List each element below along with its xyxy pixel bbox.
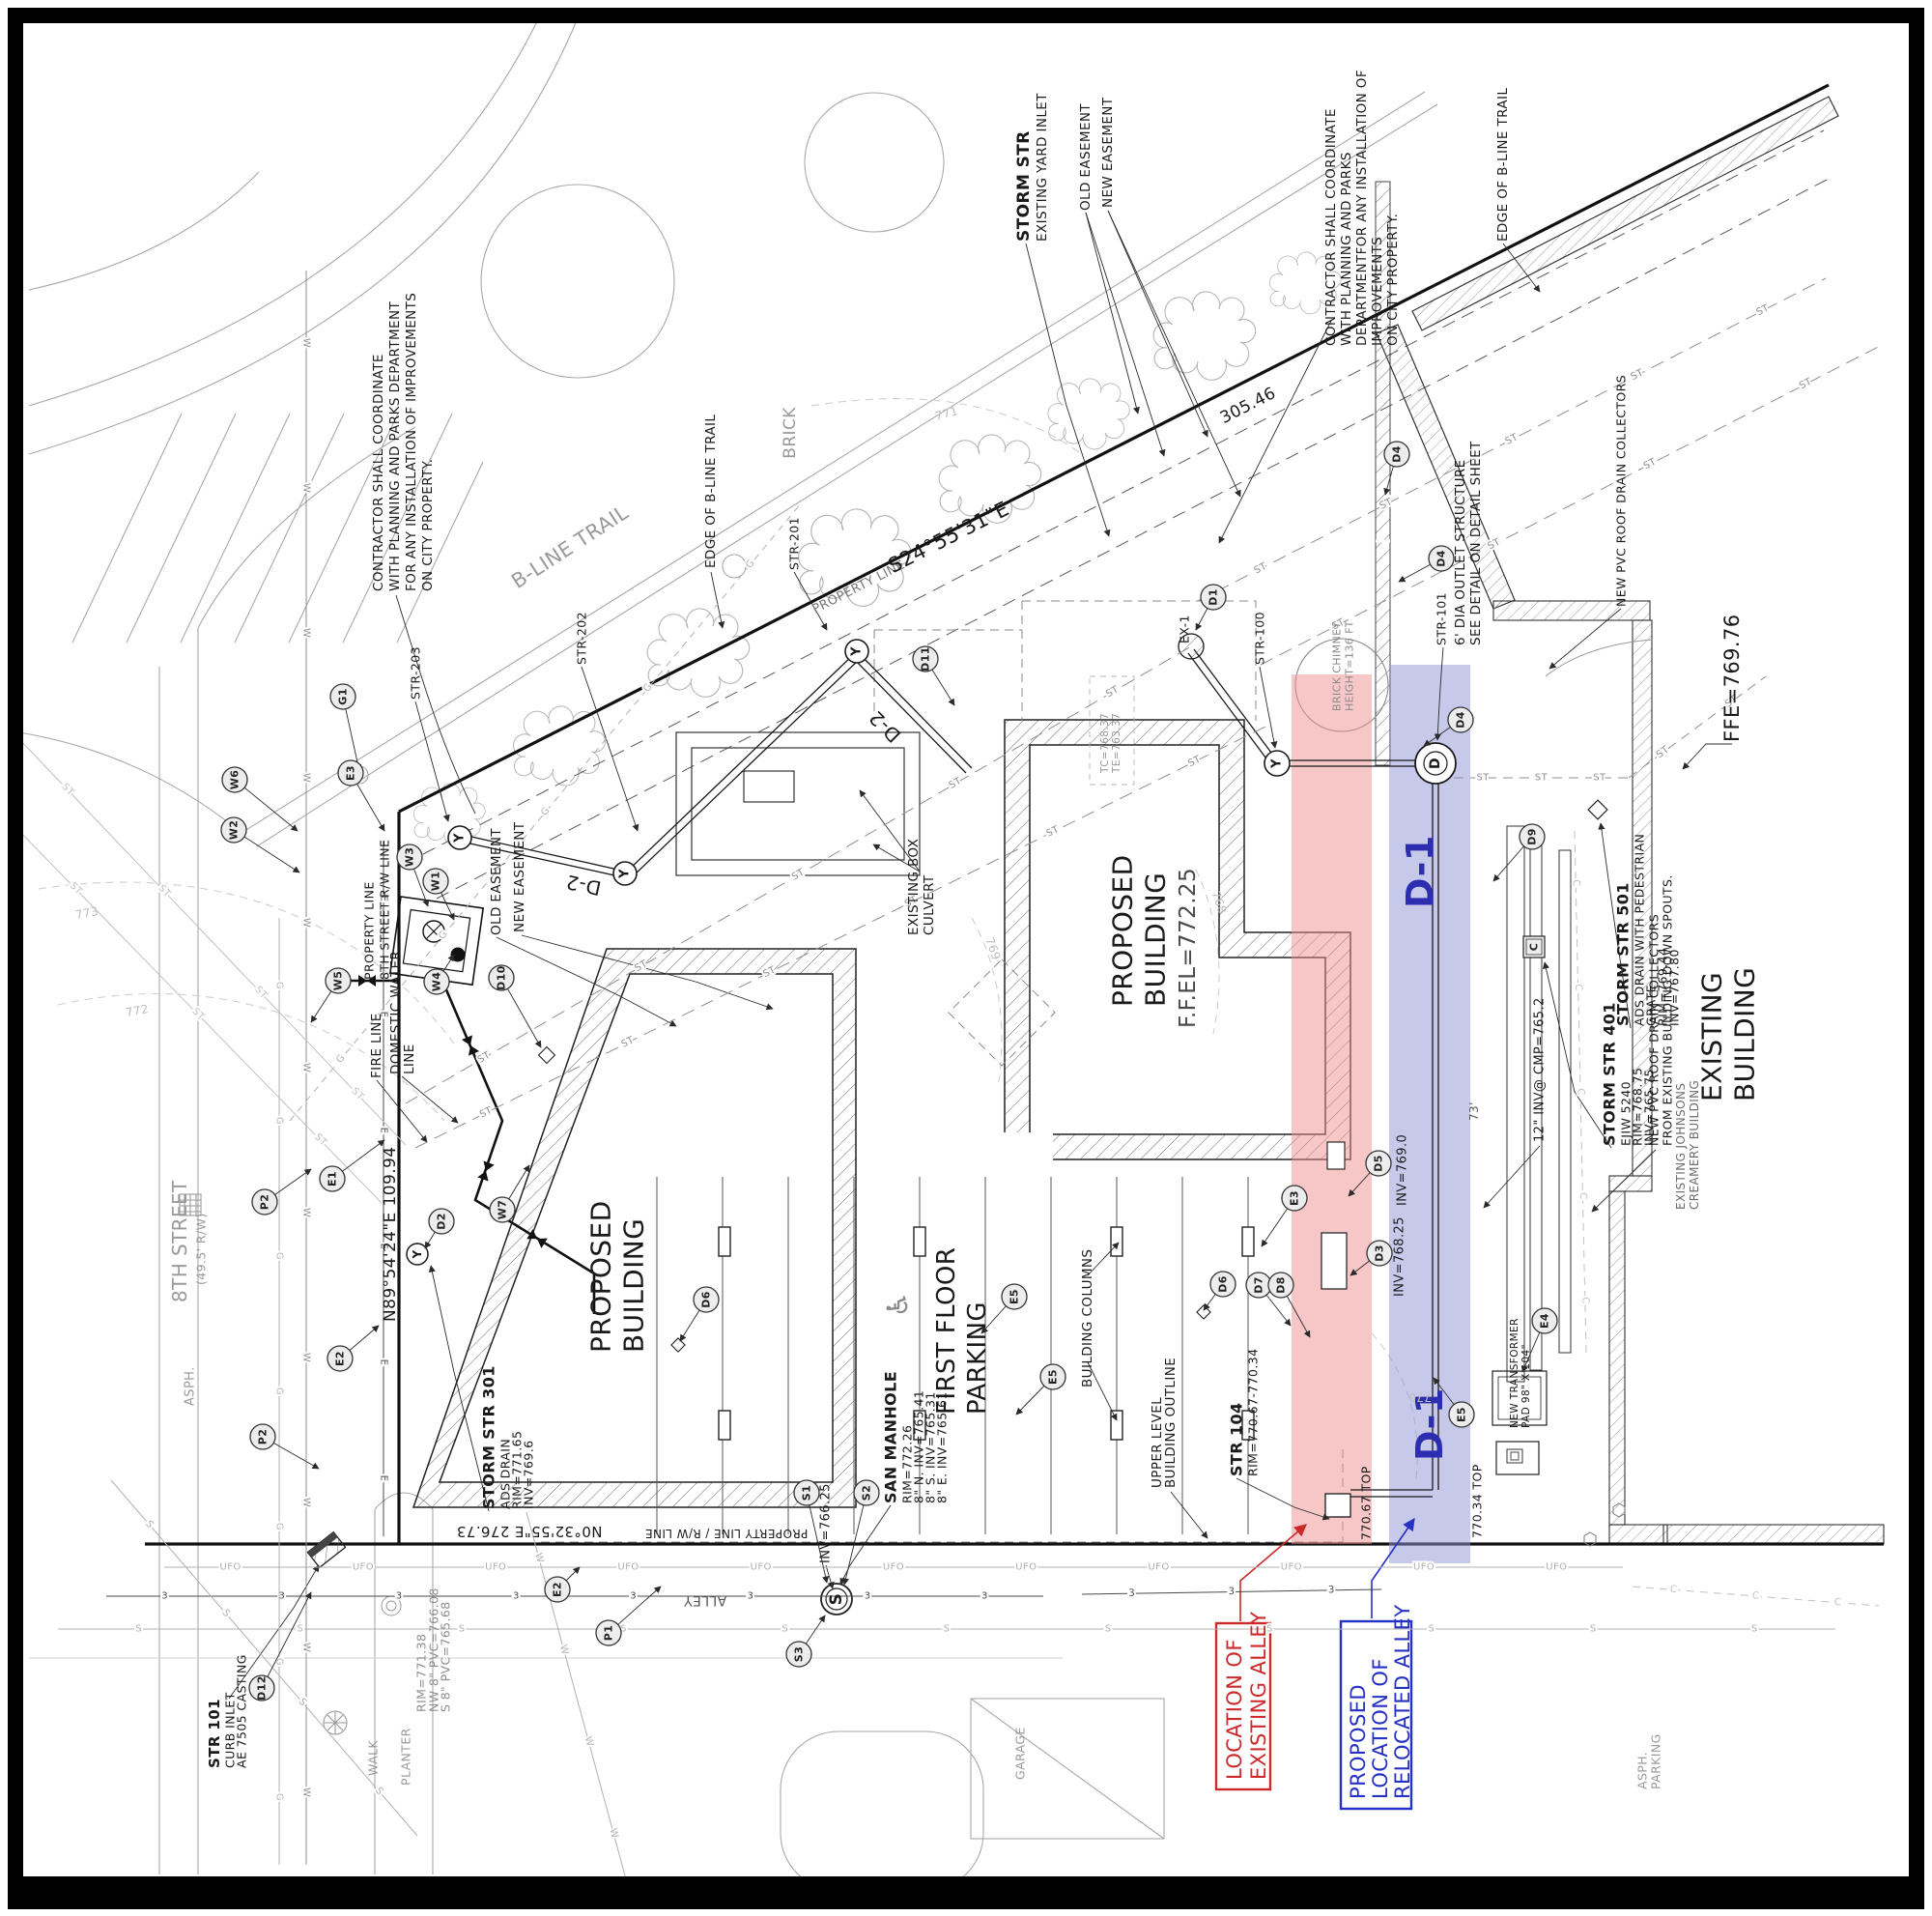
plan-label: D-2 [865,706,906,748]
planter-outline [781,1731,983,1891]
plan-label: (49.5' R/W) [194,1213,209,1285]
plan-label: FIRE LINE [369,1013,384,1078]
plan-label: B-LINE TRAIL [507,500,633,593]
utility-line-letter: W [301,628,312,638]
plan-label: S 8" PVC=765.68 [439,1601,453,1712]
marker-E2: E2 [327,1326,379,1371]
utility-line-letter: W [301,1353,312,1362]
plan-label: 773 [74,904,99,922]
plan-label: INV=765.75 [1642,1069,1657,1146]
marker-id: D10 [496,965,508,990]
plan-label: HEIGHT=136 FT [1344,620,1356,711]
marker-W5: W5 [311,968,351,1022]
plan-label: NEW EASEMENT [512,821,527,932]
marker-id: D7 [1253,1276,1265,1294]
road-curve [29,172,259,290]
utility-line-letter: E [379,1128,389,1134]
utility-line-letter: C [1579,1297,1590,1304]
plan-label: 12" INV@ CMP=765.2 [1533,997,1548,1142]
drain-symbol [1197,1305,1210,1319]
marker-P2: P2 [250,1424,319,1469]
utility-line-letter: ST [1642,456,1659,472]
plan-label: Y [1270,758,1285,769]
building-opening [968,1132,1053,1161]
plan-label: CREAMERY BUILDING [1688,1080,1701,1210]
marker-W2: W2 [221,817,299,872]
marker-D6: D6 [680,1287,719,1341]
plan-label: STR-202 [575,612,589,665]
plan-label: S24°55'31"E [884,497,1012,578]
plan-label: NEW PVC ROOF DRAIN COLLECTORS [1614,375,1629,607]
utility-line-letter: S [1751,1624,1758,1635]
plan-label: Y [453,833,468,844]
plan-label: LOCATION OF [1369,1658,1392,1799]
utility-line-letter: S [298,1624,304,1635]
utility-line-letter: C [1833,1597,1841,1609]
utility-line-letter: UFO [617,1562,639,1573]
utility-line-letter: S [944,1624,951,1635]
plan-label: ♿ [882,1291,916,1317]
utility-line-letter: ST [948,776,964,791]
utility-line-letter: UFO [485,1562,506,1573]
plan-label: ON CITY PROPERTY. [1385,214,1401,346]
plan-label: FOR ANY INSTALLATION OF IMPROVEMENTS [404,293,419,591]
utility-line-letter: S [1105,1624,1112,1635]
utility-line-letter: G [274,1793,285,1801]
utility-line-letter: G [274,1523,285,1530]
plan-label: INV=767.80 [1667,949,1682,1026]
plan-label: OLD EASEMENT [1078,103,1094,211]
utility-line-letter: W [301,1063,312,1072]
plan-label: INV=769.6 [522,1441,536,1509]
utility-line-letter: S [459,1624,466,1635]
plan-label: Y [411,1249,424,1259]
plan-label: 770.67 TOP [1359,1466,1374,1540]
utility-line-letter: 3 [630,1591,637,1602]
plan-label: PROPOSED [1107,854,1139,1007]
marker-id: D6 [700,1291,713,1308]
utility-line-letter: UFO [1413,1562,1435,1573]
marker-S3: S3 [786,1616,825,1667]
utility-line-letter: ST [620,1035,637,1050]
plan-label: 8" E. INV=765.61 [935,1391,950,1503]
plan-label: WALK [366,1740,381,1776]
utility-line-letter: ST [1186,754,1203,769]
marker-id: P2 [259,1194,271,1211]
marker-id: E1 [327,1171,339,1187]
marker-G1: G1 [330,684,359,771]
marker-id: D3 [1374,1244,1386,1262]
utility-line-letter: G [274,1387,285,1395]
marker-id: D11 [920,646,932,672]
plan-label: FFE=769.76 [1720,614,1744,742]
plan-label: ALLEY [684,1592,727,1608]
utility-line-letter: ST [790,867,807,882]
utility-line-letter: ST [1535,773,1548,784]
marker-id: S1 [801,1485,813,1501]
plan-label: PROPOSED [585,1200,617,1353]
plan-label: EXISTING BOX [906,839,922,935]
plan-label: LINE [402,1044,417,1074]
utility-line-letter: ST [1755,302,1772,318]
utility-line-letter: UFO [1546,1562,1567,1573]
plan-label: NEW TRANSFORMER [1509,1318,1520,1428]
str-104-structure [1325,1494,1350,1517]
utility-line-letter: S [220,1608,233,1619]
plan-label: LOCATION OF [1223,1639,1246,1780]
marker-id: E5 [1456,1407,1468,1422]
utility-line-letter: S [1428,1624,1435,1635]
plan-label: PROPERTY LINE [362,881,377,980]
marker-id: E2 [552,1582,564,1597]
plan-label: 8TH STREET [168,1180,191,1302]
plan-label: N0°32'55"E 276.73 [457,1523,603,1540]
utility-line-letter: C [1577,1192,1588,1200]
plan-label: S [827,1593,846,1606]
marker-C: C [1523,936,1545,958]
marker-id: D6 [1217,1275,1230,1293]
plan-label: BUILDING [1729,967,1761,1101]
marker-E2: E2 [545,1567,580,1602]
utility-line-letter: 3 [747,1591,753,1602]
marker-id: S3 [793,1646,806,1662]
marker-id: P2 [257,1429,270,1445]
utility-line-letter: S [781,1624,788,1635]
plan-label: 73' [1467,1101,1481,1121]
plan-label: CULVERT [922,874,937,935]
storm-box [1327,1142,1345,1169]
utility-line-letter: 3 [981,1591,988,1602]
marker-id: W4 [431,972,443,992]
marker-id: E5 [1009,1289,1021,1304]
tree-canopy-large [481,185,674,378]
utility-line-letter: W [607,1827,619,1840]
utility-line-letter: S [135,1624,142,1635]
plan-label: PROPOSED [1347,1684,1370,1799]
utility-line-letter: ST [1630,367,1646,383]
plan-label: FIRST FLOOR [932,1247,961,1415]
marker-id: D1 [1207,588,1220,606]
marker-id: D8 [1275,1276,1288,1294]
plan-label: INV=769.0 [1396,1134,1410,1206]
utility-line-letter: ST [478,1105,495,1121]
plan-label: IMPROVEMENTS [1370,237,1385,346]
marker-id: D4 [1455,711,1467,729]
marker-D10: D10 [489,965,541,1047]
marker-E1: E1 [320,1140,384,1191]
utility-line-letter: UFO [1148,1562,1169,1573]
site-plan-drawing: UFOUFOUFOUFOUFOUFOUFOUFOUFOUFOUFO3333333… [0,0,1932,1916]
utility-line [19,739,406,1145]
plan-label: GARAGE [1013,1727,1028,1780]
plan-label: RELOCATED ALLEY [1391,1604,1414,1799]
utility-line-letter: UFO [353,1562,374,1573]
utility-line-letter: W [532,1552,545,1564]
utility-line-letter: UFO [883,1562,904,1573]
utility-line-letter: W [301,1787,312,1797]
plan-label: PROPERTY LINE / R/W LINE [645,1527,809,1540]
marker-id: D2 [436,1213,448,1230]
utility-line-letter: W [557,1644,570,1656]
plan-label: D [1428,758,1443,769]
marker-id: S2 [861,1485,873,1501]
utility-line-letter: ST [1655,744,1672,760]
plan-label: DEPARTMENTFOR ANY INSTALLATION OF [1354,70,1370,346]
utility-line-letter: G [437,929,450,941]
utility-line-letter: ST [1253,560,1269,576]
marker-id: W3 [404,847,416,868]
plan-label: EXISTING YARD INLET [1035,93,1050,242]
utility-line-letter: S [297,1697,309,1708]
utility-line-letter: E [379,1359,389,1366]
marker-id: E3 [345,765,357,781]
utility-line-letter: UFO [220,1562,241,1573]
plan-label: STR 104 [1228,1402,1246,1476]
existing-bldg-south-wall [1663,1525,1884,1544]
marker-D4: D4 [1399,546,1454,582]
plan-label: TC=768.37 [1099,713,1111,774]
plan-label: BUILDING OUTLINE [1163,1358,1179,1488]
utility-line-letter: G [539,805,553,817]
utility-line-letter: ST [1504,432,1520,447]
plan-label: WITH PLANNING AND PARKS DEPARTMENT [387,301,403,591]
marker-E5: E5 [1016,1364,1065,1415]
plan-label: SEE DETAIL ON DETAIL SHEET [1468,441,1484,645]
utility-line-letter: W [301,483,312,493]
utility-line-letter: W [301,1643,312,1652]
utility-line-letter: 3 [278,1591,285,1602]
plan-label: D-2 [564,870,604,900]
marker-id: W7 [497,1200,509,1220]
plan-label: WITH PLANNING AND PARKS [1339,152,1354,346]
utility-line-letter: W [582,1735,595,1748]
utility-line-letter: UFO [751,1562,772,1573]
storm-box [1321,1233,1347,1289]
plan-label: 770.34 TOP [1470,1464,1485,1538]
drain-symbol [671,1338,685,1352]
plan-label: INV=768.25 [1393,1216,1407,1297]
utility-line-letter: C [1573,984,1583,991]
plan-label: BUILDING [618,1218,650,1353]
marker-E3: E3 [338,760,384,831]
marker-id: D9 [1526,828,1539,845]
plan-label: EDGE OF B-LINE TRAIL [1495,88,1511,242]
utility-line-letter: W [301,1208,312,1217]
plan-label: EXISTING ALLEY [1247,1612,1270,1780]
plan-label: F.F.EL=772.25 [1176,868,1201,1028]
utility-line-letter: W [301,773,312,783]
utility-line-letter: 3 [396,1591,403,1602]
plan-label: 6' DIA OUTLET STRUCTURE [1453,459,1468,645]
utility-line-letter: ST [1104,684,1121,700]
marker-D6: D6 [1204,1272,1236,1310]
plan-label: STR-201 [787,517,802,570]
marker-leader [262,1592,311,1688]
plan-label: Y [850,646,865,657]
marker-D1: D1 [1196,585,1226,630]
plan-label: ASPH. [1635,1752,1650,1789]
plan-label: PLANTER [399,1728,413,1786]
pedestrian-grate [1588,800,1607,819]
plan-label: BRICK [781,407,800,459]
tree-canopy [805,93,944,232]
plan-label: BUILDING COLUMNS [1080,1249,1095,1387]
utility-line-letter: UFO [1015,1562,1037,1573]
trail-edge [19,732,241,833]
utility-line-letter: G [334,1052,348,1065]
plan-label: STR 101 [206,1699,223,1768]
marker-id: E4 [1539,1313,1551,1329]
marker-id: E2 [334,1351,347,1366]
marker-id: W5 [332,971,345,991]
utility-line-letter: 3 [513,1591,520,1602]
utility-line-letter: W [301,1498,312,1507]
plan-label: D-1 [1399,835,1441,908]
existing-bldg-north-wall [1412,97,1838,330]
marker-P1: P1 [596,1587,661,1645]
plan-label: Y [618,869,633,879]
plan-label: STR-100 [1253,612,1267,665]
plan-label: STORM STR 401 [1601,1002,1619,1146]
marker-id: D4 [1391,445,1404,463]
utility-line-letter: S [143,1519,156,1530]
plan-label: BUILDING [1140,872,1172,1007]
plan-label: EXISTING JOHNSONS [1674,1083,1688,1210]
plan-label: SAN MANHOLE [882,1371,900,1503]
plan-label: ON CITY PROPERTY. [420,459,436,591]
plan-label: 772 [125,1002,150,1019]
plan-label: STR-203 [409,646,423,700]
utility-line-letter: ST [1477,773,1491,784]
utility-line-letter: E [379,1475,389,1482]
utility-line-letter: UFO [1281,1562,1302,1573]
road-curve [29,14,541,406]
utility-line-letter: 3 [865,1591,871,1602]
site-plan-sheet: UFOUFOUFOUFOUFOUFOUFOUFOUFOUFOUFO3333333… [0,0,1932,1916]
marker-id: G1 [337,688,350,704]
plan-label: NEW EASEMENT [1100,97,1116,208]
utility-line-letter: C [1751,1590,1759,1602]
existing-alley-highlight [1292,674,1372,1544]
utility-line-letter: 3 [1128,1588,1135,1599]
utility-line-letter: 3 [1229,1587,1236,1597]
plan-label: 771 [934,404,960,423]
marker-D9: D9 [1493,824,1545,881]
marker-D11: D11 [913,646,954,705]
plan-label: INV=766.25 [819,1483,834,1563]
plan-label: N89°54'24"E 109.94 [381,1147,400,1322]
curb-stop [451,948,465,961]
drain-symbol [539,1047,555,1064]
box-culvert [676,732,920,875]
plan-label: TE=763.37 [1111,713,1122,774]
utility-line-letter: 3 [161,1591,168,1602]
marker-id: W2 [228,820,241,841]
utility-line-letter: S [1590,1624,1597,1635]
road-curve [29,14,580,454]
marker-id: W1 [430,872,442,892]
plan-label: PARKING [963,1301,992,1415]
plan-label: RIM=770.67-770.34 [1246,1349,1261,1476]
plan-label: STORM STR 301 [480,1365,498,1509]
utility-line-letter: C [1575,1088,1585,1096]
utility-line-letter: C [1571,879,1581,887]
plan-label: 770 [1408,1390,1432,1404]
plan-label: PAD 98" X 104" [1520,1344,1532,1428]
marker-W4: W4 [424,955,454,994]
existing-bldg-wall [1609,1191,1625,1525]
utility-line-letter: ST [1593,773,1606,784]
plan-label: BRICK CHIMNEY [1331,621,1344,711]
marker-id: P1 [603,1625,615,1642]
plan-label: EDGE OF B-LINE TRAIL [703,415,719,568]
marker-id: E3 [1289,1190,1301,1206]
plan-label: STORM STR [1014,130,1034,242]
utility-line-letter: G [274,1117,285,1125]
plan-label: PARKING [1649,1733,1663,1789]
curb-inlet-symbol [307,1532,345,1568]
plan-label: STR-101 [1435,592,1449,645]
plan-label: EX-1 [1178,615,1192,643]
marker-id: W6 [229,770,241,790]
marker-id: D4 [1435,550,1448,567]
plan-label: CONTRACTOR SHALL COORDINATE [371,354,386,591]
utility-line-letter: ST [1045,824,1062,840]
plan-label: OLD EASEMENT [489,828,504,935]
utility-line-letter: W [301,918,312,928]
plan-label: CONTRACTOR SHALL COORDINATE [1323,108,1339,346]
utility-line-letter: G [274,1252,285,1260]
marker-id: E5 [1047,1369,1060,1385]
utility-line-letter: 3 [1328,1585,1335,1595]
existing-bldg-wall [1609,1525,1667,1544]
garage-diagonal [971,1699,1164,1839]
plan-label: ASPH. [184,1366,198,1406]
utility-line-letter: G [274,982,285,989]
utility-line-letter: W [301,338,312,348]
marker-id: D12 [256,1675,269,1701]
utility-line-letter: C [1669,1585,1677,1596]
marker-id: C [1528,943,1541,951]
plan-label: AE 7505 CASTING [235,1654,249,1768]
marker-D2: D2 [425,1209,454,1248]
marker-id: D5 [1373,1155,1385,1172]
utility-line-letter: ST [1798,376,1814,391]
